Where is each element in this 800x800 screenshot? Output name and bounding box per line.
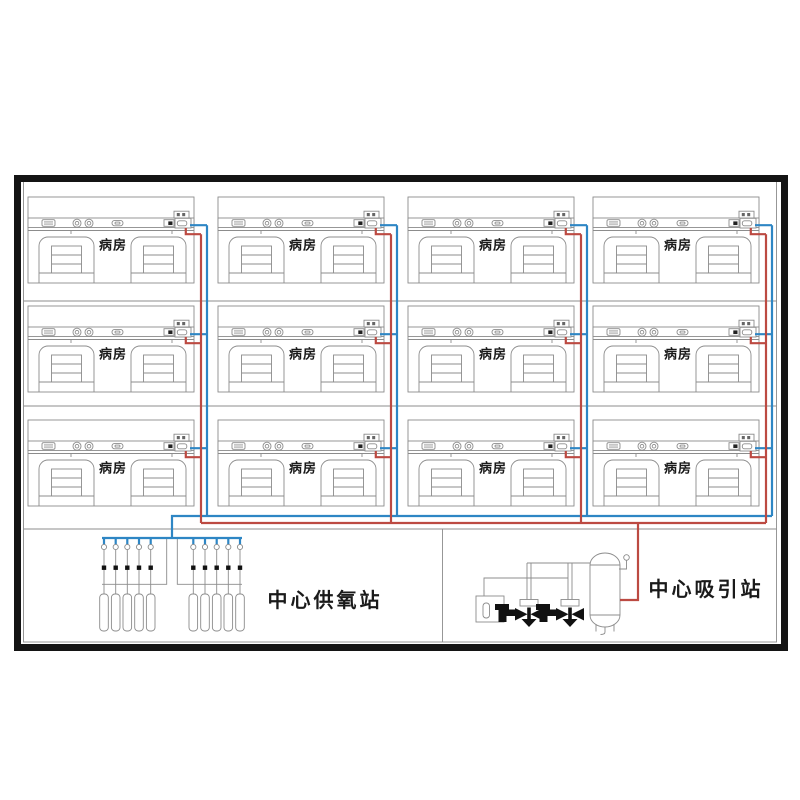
suction-tank-feed (620, 523, 638, 600)
vacuum-tank-icon (590, 553, 620, 635)
ward-unit (218, 306, 397, 392)
pump-riser-pipe (568, 563, 572, 600)
ward-grid (28, 197, 772, 506)
ward-unit (218, 197, 397, 283)
vacuum-pump (536, 600, 584, 628)
hospital-gas-system-diagram: 病房 (0, 0, 800, 800)
pump-riser-pipe (527, 563, 531, 600)
ward-unit (408, 306, 587, 392)
manifold-rack (102, 539, 242, 584)
oxygen-collector-main (172, 516, 772, 538)
ward-unit (28, 420, 207, 506)
ward-unit (593, 197, 772, 283)
ward-unit (408, 197, 587, 283)
ward-unit (408, 420, 587, 506)
schematic-page: 病房 (0, 0, 800, 800)
ward-unit (28, 306, 207, 392)
ward-unit (593, 420, 772, 506)
suction-station: 中心吸引站 (476, 553, 764, 635)
suction-station-label: 中心吸引站 (649, 577, 764, 601)
oxygen-station-label: 中心供氧站 (268, 588, 383, 612)
suction-pipe-network (201, 234, 766, 600)
ward-unit (593, 306, 772, 392)
ward-unit (218, 420, 397, 506)
ward-unit (28, 197, 207, 283)
pressure-gauge-icon (619, 555, 629, 569)
oxygen-station: 中心供氧站 (100, 538, 383, 631)
tank-drain (601, 627, 606, 635)
pump-control-pipe (484, 578, 568, 596)
